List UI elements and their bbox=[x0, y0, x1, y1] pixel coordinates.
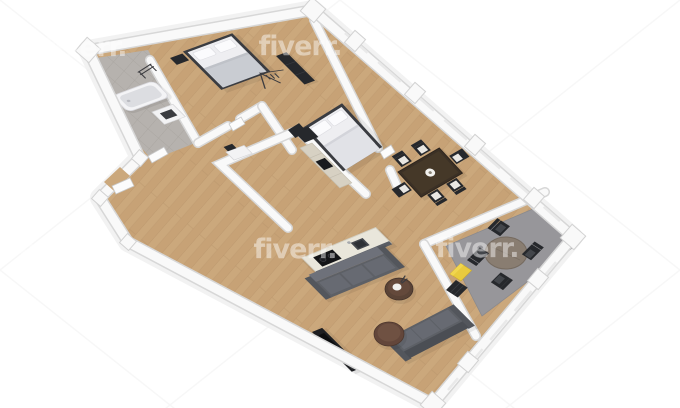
watermark-text: fiverr. bbox=[44, 32, 127, 63]
floor-plan-image: fiverr. fiverr. fiverr. fiverr. fiverr. … bbox=[0, 0, 680, 408]
tray bbox=[393, 284, 402, 291]
watermark-text: fiverr. bbox=[254, 234, 337, 265]
watermark-text: fiverr. bbox=[0, 234, 66, 265]
floor-plan-svg: fiverr. fiverr. fiverr. fiverr. fiverr. … bbox=[0, 0, 680, 408]
watermark-text: fiverr. bbox=[457, 31, 540, 62]
watermark-text: fiverr. bbox=[259, 31, 342, 62]
watermark-text: fiverr. bbox=[436, 233, 519, 264]
